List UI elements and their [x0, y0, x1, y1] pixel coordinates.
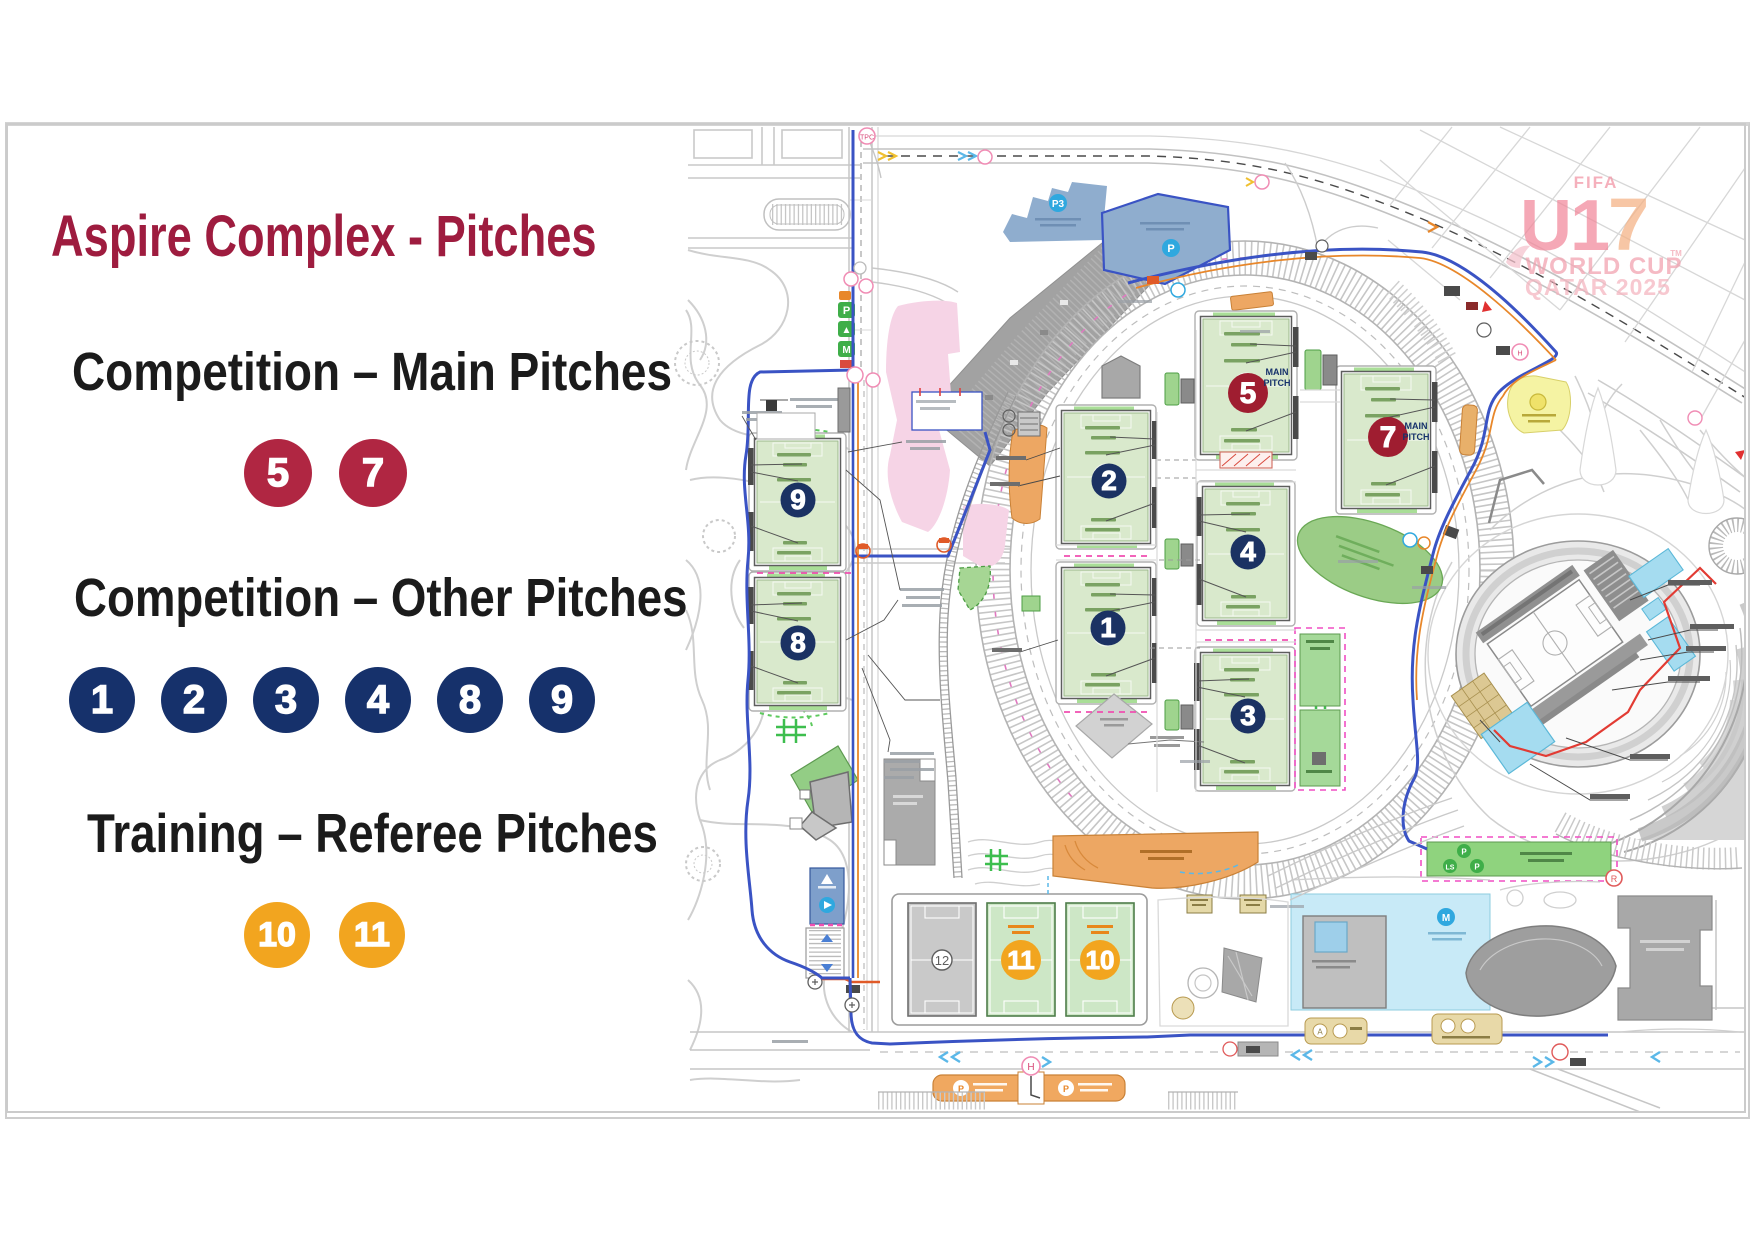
svg-text:H: H	[1517, 351, 1522, 358]
svg-text:LS: LS	[1446, 865, 1455, 872]
svg-text:7: 7	[1380, 421, 1397, 454]
svg-text:1: 1	[1100, 612, 1116, 643]
svg-text:R: R	[1611, 874, 1618, 884]
svg-text:H: H	[1027, 1062, 1034, 1073]
svg-text:MAIN: MAIN	[1266, 367, 1289, 377]
svg-text:8: 8	[790, 627, 806, 658]
svg-text:A: A	[1317, 1028, 1323, 1037]
svg-text:PITCH: PITCH	[1264, 378, 1291, 388]
svg-text:P: P	[1461, 848, 1467, 857]
svg-text:P: P	[1474, 863, 1480, 872]
svg-text:MAIN: MAIN	[1405, 421, 1428, 431]
svg-text:P: P	[1167, 243, 1174, 255]
svg-text:P: P	[1063, 1084, 1069, 1094]
svg-text:4: 4	[1240, 536, 1256, 567]
svg-text:TM: TM	[1670, 249, 1682, 258]
svg-text:10: 10	[1086, 945, 1115, 975]
svg-text:QATAR 2025: QATAR 2025	[1525, 274, 1671, 300]
svg-text:P3: P3	[1052, 199, 1065, 210]
svg-text:▲: ▲	[842, 325, 852, 336]
svg-text:3: 3	[1240, 700, 1256, 731]
svg-text:5: 5	[1240, 377, 1257, 410]
svg-text:11: 11	[1007, 945, 1035, 975]
svg-text:PITCH: PITCH	[1403, 432, 1430, 442]
svg-text:P: P	[843, 305, 850, 317]
svg-text:M: M	[1442, 913, 1450, 924]
svg-text:2: 2	[1101, 465, 1117, 496]
svg-text:12: 12	[935, 953, 949, 968]
svg-text:M: M	[842, 345, 850, 356]
svg-text:9: 9	[790, 484, 806, 515]
svg-text:TPC: TPC	[860, 135, 874, 142]
